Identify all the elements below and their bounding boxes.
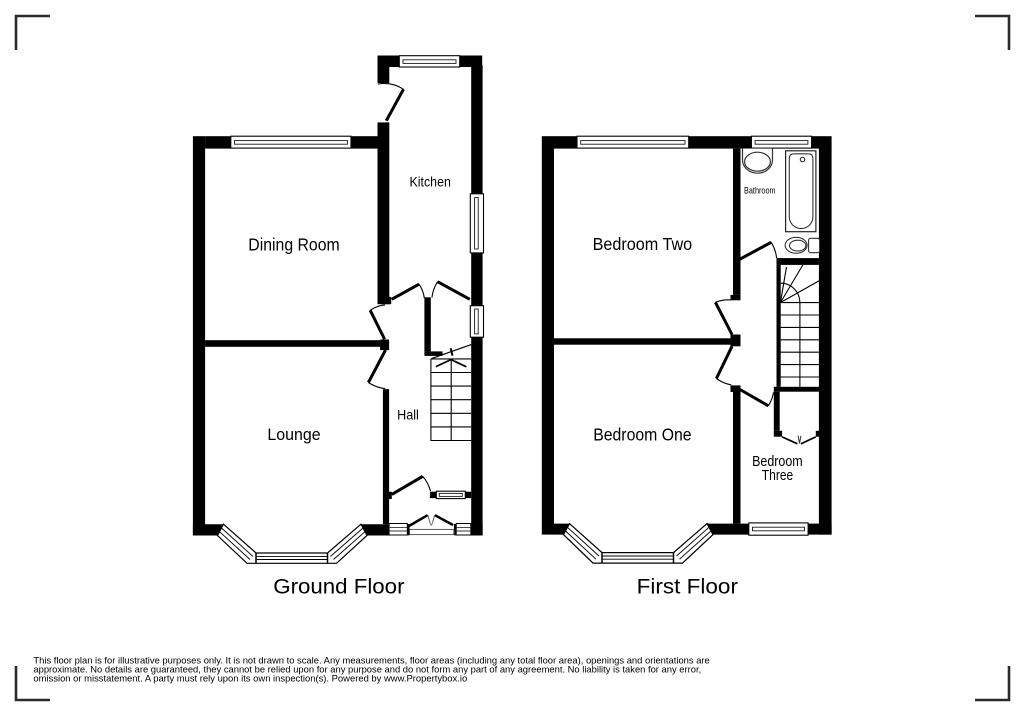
- svg-text:Ground Floor: Ground Floor: [273, 576, 404, 599]
- svg-text:omission or misstatement. A pa: omission or misstatement. A party must r…: [33, 674, 467, 684]
- svg-text:Three: Three: [762, 467, 794, 484]
- svg-text:Hall: Hall: [397, 408, 419, 423]
- svg-text:Dining Room: Dining Room: [248, 234, 339, 254]
- svg-text:First Floor: First Floor: [637, 576, 738, 599]
- svg-text:Bathroom: Bathroom: [744, 186, 776, 196]
- svg-text:Bedroom Two: Bedroom Two: [593, 234, 693, 254]
- svg-text:Bedroom One: Bedroom One: [593, 425, 691, 445]
- svg-text:Lounge: Lounge: [267, 426, 320, 444]
- svg-text:Kitchen: Kitchen: [410, 173, 451, 189]
